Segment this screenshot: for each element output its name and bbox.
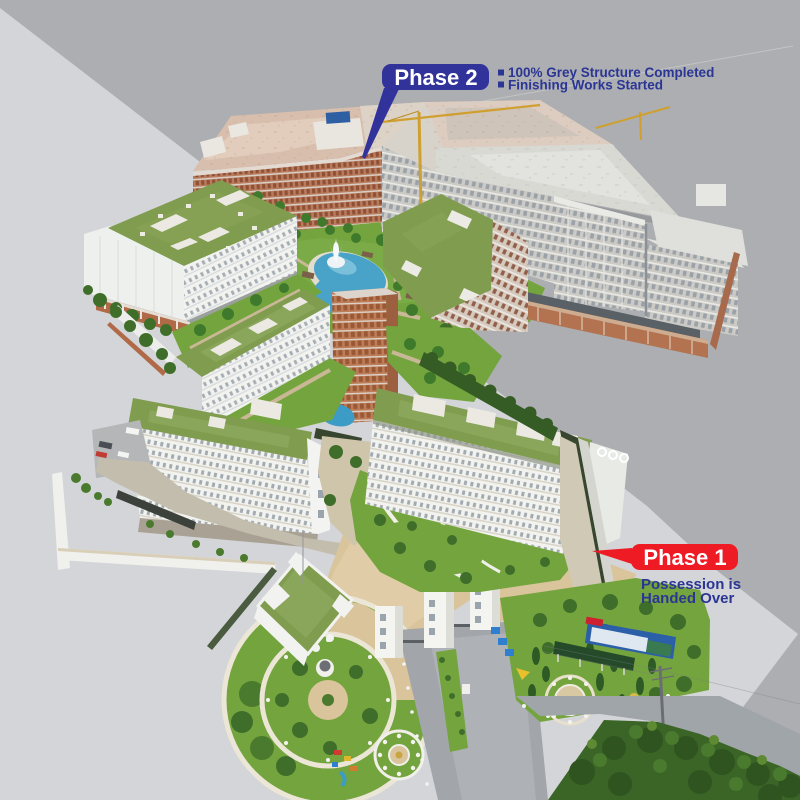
svg-text:Phase 2: Phase 2 [394, 65, 477, 90]
svg-text:Handed Over: Handed Over [641, 590, 735, 607]
svg-text:Phase 1: Phase 1 [643, 545, 726, 570]
svg-text:Finishing Works Started: Finishing Works Started [508, 78, 663, 93]
